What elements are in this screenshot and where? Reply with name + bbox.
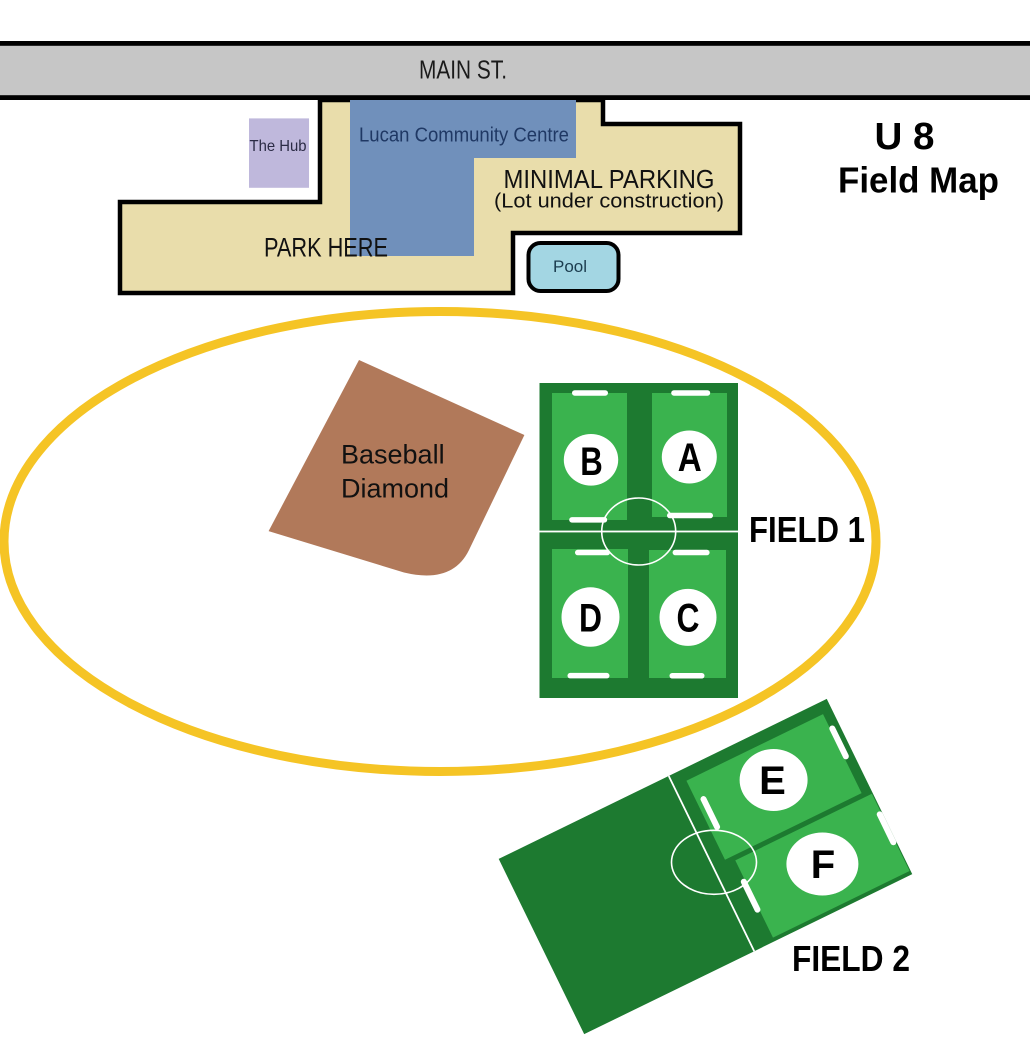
svg-text:PARK HERE: PARK HERE [264,233,388,263]
svg-text:A: A [678,436,702,480]
svg-text:Baseball: Baseball [341,440,445,470]
svg-text:Lucan Community Centre: Lucan Community Centre [359,125,569,147]
svg-text:Pool: Pool [553,257,587,276]
svg-text:FIELD 2: FIELD 2 [792,938,910,979]
svg-text:B: B [580,440,603,484]
svg-text:MAIN ST.: MAIN ST. [419,55,507,85]
svg-text:F: F [811,843,835,887]
svg-text:The Hub: The Hub [250,138,307,155]
svg-text:U 8: U 8 [875,116,935,158]
svg-text:Field Map: Field Map [838,160,999,201]
svg-text:E: E [759,759,786,803]
svg-text:D: D [579,597,602,641]
svg-text:C: C [677,597,700,641]
svg-text:MINIMAL PARKING: MINIMAL PARKING [504,164,715,194]
svg-text:(Lot under construction): (Lot under construction) [494,191,724,213]
svg-text:Diamond: Diamond [341,474,449,504]
svg-text:FIELD 1: FIELD 1 [749,509,865,550]
